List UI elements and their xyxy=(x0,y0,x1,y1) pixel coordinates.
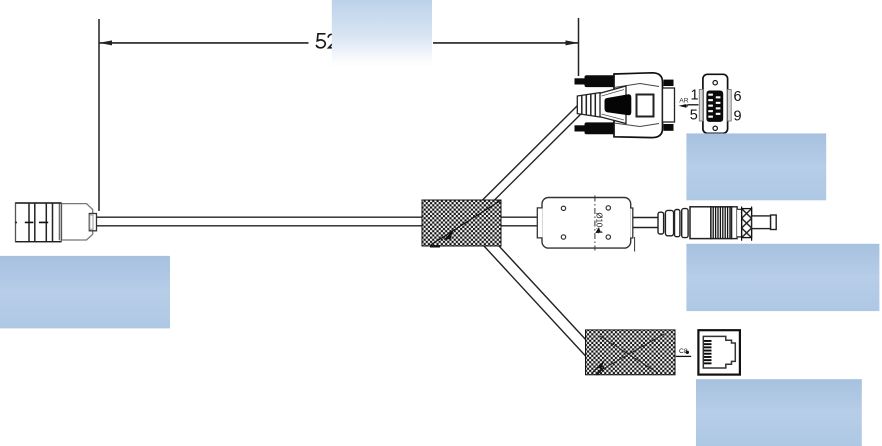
svg-text:1: 1 xyxy=(691,87,699,103)
svg-text:9: 9 xyxy=(734,108,742,124)
svg-text:AR: AR xyxy=(679,98,688,105)
svg-text:5: 5 xyxy=(690,107,698,123)
svg-text:6: 6 xyxy=(734,89,742,105)
